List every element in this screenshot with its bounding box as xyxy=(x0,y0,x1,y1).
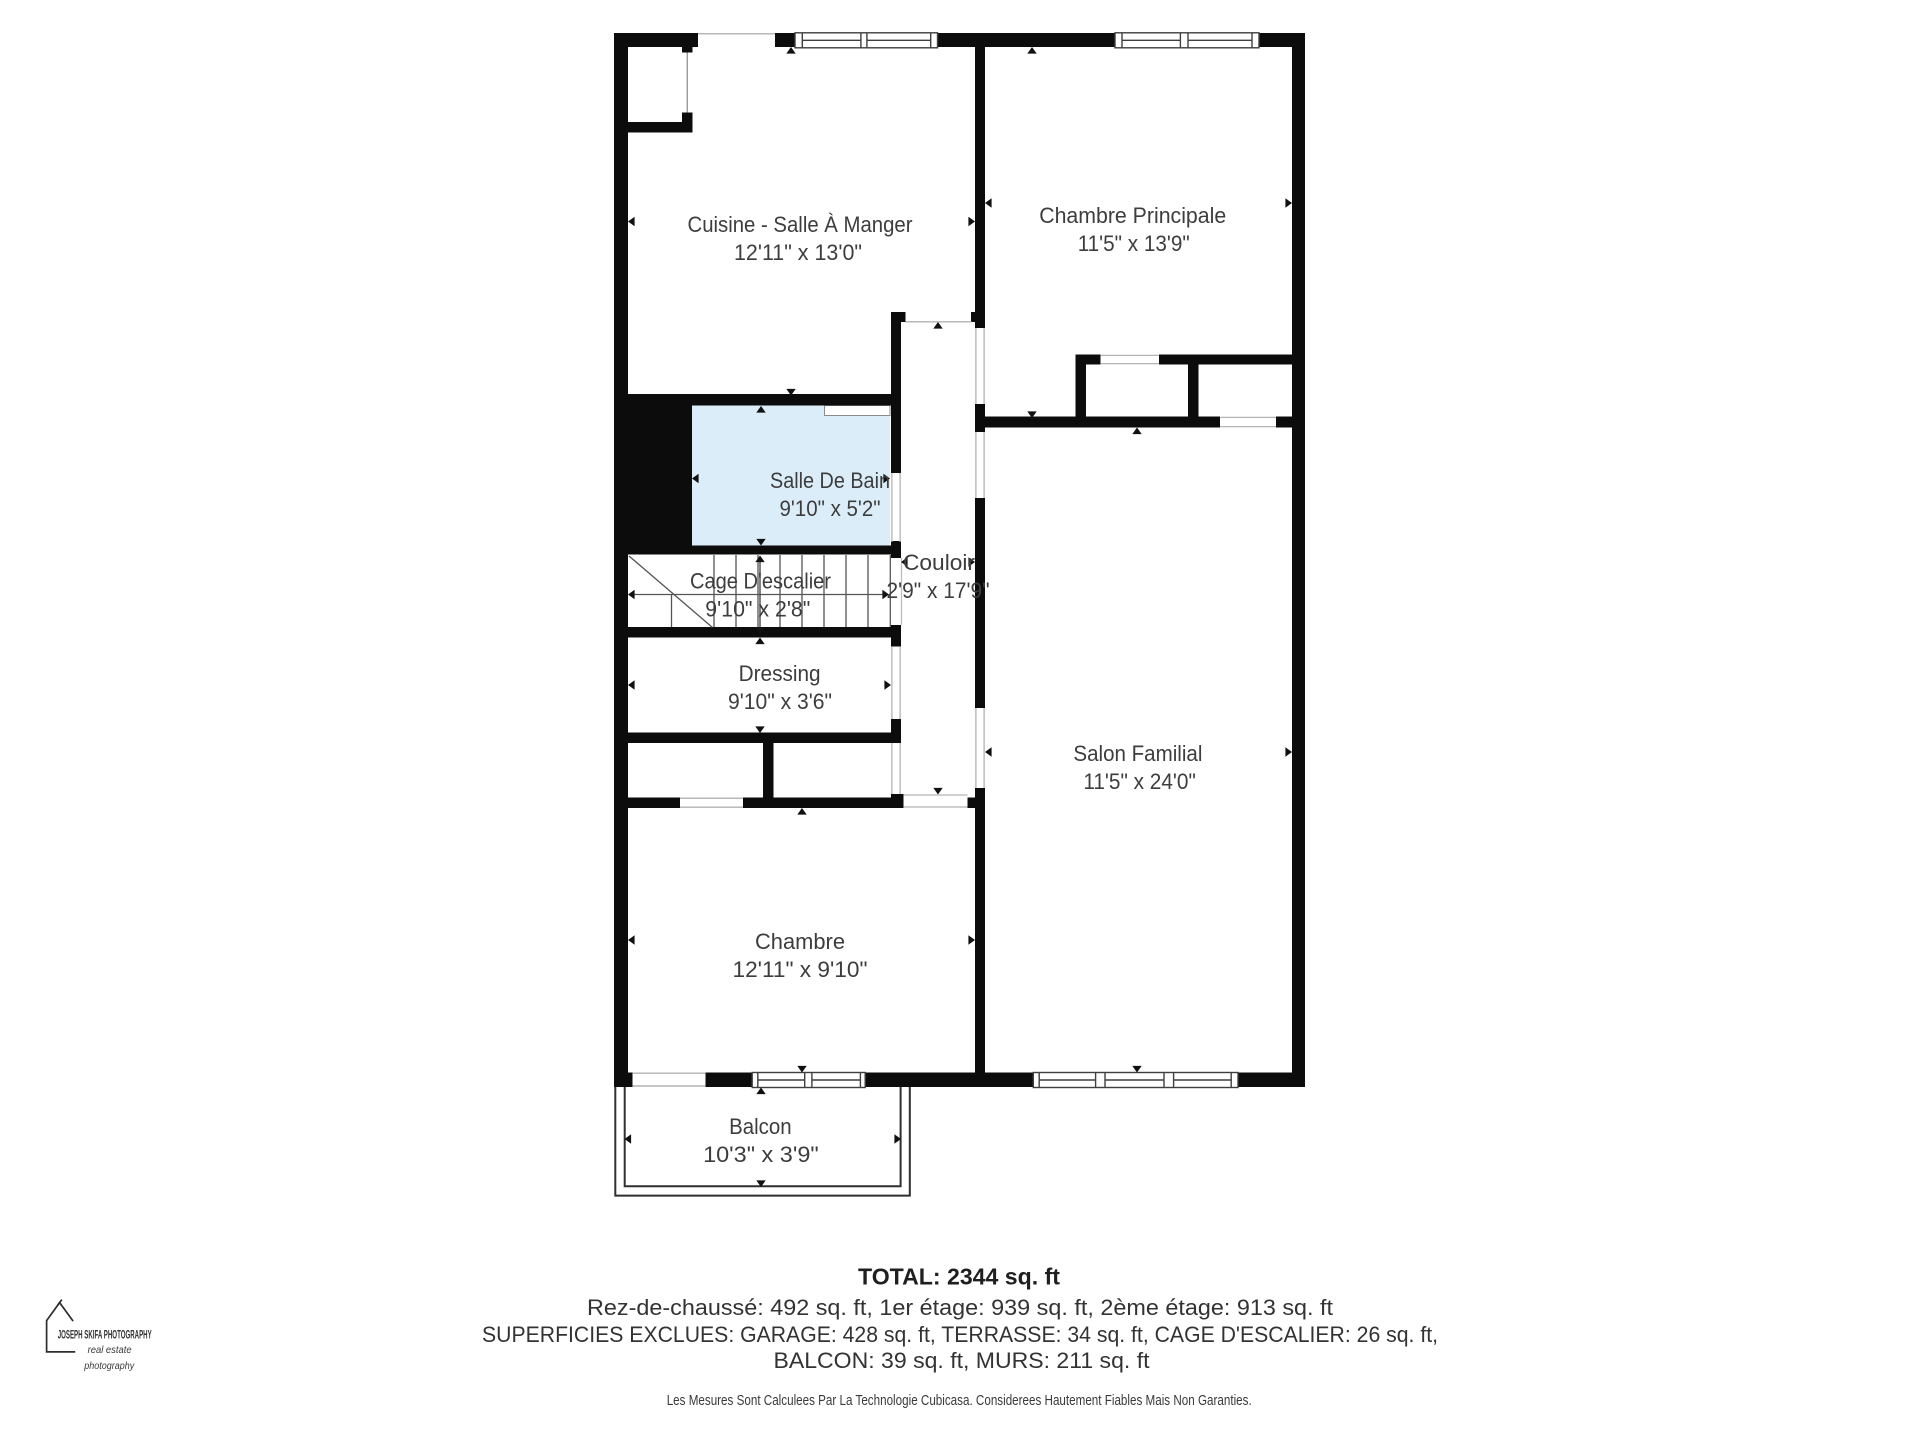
svg-text:Dressing: Dressing xyxy=(739,661,821,686)
svg-text:Cage D'escalier: Cage D'escalier xyxy=(690,569,831,594)
svg-text:photography: photography xyxy=(83,1360,134,1372)
svg-text:BALCON: 39 sq. ft, MURS: 211 s: BALCON: 39 sq. ft, MURS: 211 sq. ft xyxy=(774,1348,1150,1373)
svg-text:11'5" x 13'9": 11'5" x 13'9" xyxy=(1078,231,1190,256)
svg-text:SUPERFICIES EXCLUES: GARAGE: 4: SUPERFICIES EXCLUES: GARAGE: 428 sq. ft,… xyxy=(482,1322,1438,1347)
svg-text:Les Mesures Sont Calculees Par: Les Mesures Sont Calculees Par La Techno… xyxy=(667,1392,1252,1409)
svg-text:Salon Familial: Salon Familial xyxy=(1073,741,1202,766)
svg-text:Chambre Principale: Chambre Principale xyxy=(1039,203,1226,228)
svg-text:9'10" x 5'2": 9'10" x 5'2" xyxy=(780,496,881,521)
svg-text:9'10" x 3'6": 9'10" x 3'6" xyxy=(728,689,832,714)
svg-text:10'3" x 3'9": 10'3" x 3'9" xyxy=(703,1142,819,1167)
svg-text:JOSEPH SKIFA PHOTOGRAPHY: JOSEPH SKIFA PHOTOGRAPHY xyxy=(58,1329,152,1341)
svg-text:TOTAL: 2344 sq. ft: TOTAL: 2344 sq. ft xyxy=(858,1263,1060,1289)
svg-text:12'11" x 13'0": 12'11" x 13'0" xyxy=(734,240,862,265)
svg-text:9'10" x 2'8": 9'10" x 2'8" xyxy=(705,597,810,622)
svg-text:12'11" x 9'10": 12'11" x 9'10" xyxy=(733,957,868,982)
svg-text:11'5" x 24'0": 11'5" x 24'0" xyxy=(1083,769,1196,794)
svg-text:Rez-de-chaussé: 492 sq. ft, 1e: Rez-de-chaussé: 492 sq. ft, 1er étage: 9… xyxy=(587,1295,1333,1320)
svg-text:real estate: real estate xyxy=(88,1344,132,1356)
svg-text:Couloir: Couloir xyxy=(903,550,975,575)
svg-text:Chambre: Chambre xyxy=(755,929,845,954)
svg-text:Balcon: Balcon xyxy=(729,1114,792,1139)
svg-text:Salle De Bain: Salle De Bain xyxy=(770,468,890,493)
svg-text:Cuisine - Salle À Manger: Cuisine - Salle À Manger xyxy=(688,212,913,237)
svg-text:2'9" x 17'9": 2'9" x 17'9" xyxy=(887,578,990,603)
